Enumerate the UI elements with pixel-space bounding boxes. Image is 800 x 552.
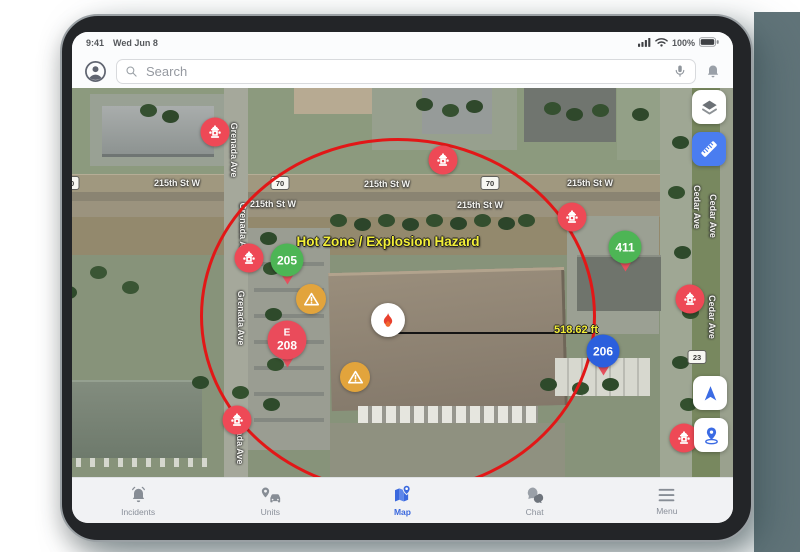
mic-icon[interactable] (673, 63, 687, 79)
street-label: Grenada Ave (229, 123, 239, 178)
nav-label: Menu (656, 506, 677, 516)
layers-icon (699, 97, 720, 118)
nav-label: Units (261, 507, 280, 517)
street-label: 215th St W (567, 178, 613, 188)
unit-pin-205[interactable]: 205 (271, 244, 304, 285)
wifi-icon (655, 37, 668, 49)
clock: 9:41 (86, 38, 104, 48)
fire-hydrant-marker[interactable] (676, 285, 705, 314)
warning-marker[interactable] (340, 362, 370, 392)
fire-hydrant-marker[interactable] (558, 203, 587, 232)
fire-hydrant-marker[interactable] (429, 146, 458, 175)
notifications-bell-icon[interactable] (705, 63, 721, 80)
menu-icon (656, 486, 677, 504)
layers-button[interactable] (692, 90, 726, 124)
building (72, 380, 202, 458)
satellite-map[interactable]: 215th St W 215th St W 215th St W 215th S… (72, 88, 733, 477)
warning-marker[interactable] (296, 284, 326, 314)
nav-item-map[interactable]: Map (362, 484, 442, 517)
nav-item-units[interactable]: Units (230, 485, 310, 517)
top-app-bar (72, 54, 733, 88)
road-cedar (660, 88, 692, 477)
chat-icon (524, 485, 546, 505)
battery-icon (699, 37, 719, 49)
measure-ruler-button[interactable] (692, 132, 726, 166)
navigation-arrow-icon (700, 383, 721, 404)
fire-hydrant-marker[interactable] (201, 118, 230, 147)
bottom-navigation: Incidents Units Map Chat Menu (72, 477, 733, 523)
fire-hydrant-marker[interactable] (235, 244, 264, 273)
avatar[interactable] (84, 60, 107, 83)
unit-pin-label: 208 (277, 340, 297, 352)
battery-percent: 100% (672, 38, 695, 48)
street-label: Cedar Ave (708, 194, 718, 238)
search-input[interactable] (144, 63, 673, 80)
street-label: Cedar Ave (707, 295, 717, 339)
units-vehicle-icon (258, 485, 283, 505)
unit-pin-label: 411 (615, 241, 634, 253)
nav-label: Incidents (121, 507, 155, 517)
unit-pin-label: 206 (593, 345, 613, 357)
fire-hydrant-marker[interactable] (223, 406, 252, 435)
navigation-button[interactable] (693, 376, 727, 410)
street-label: Cedar Ave (692, 185, 702, 229)
terrain-patch (422, 88, 492, 134)
terrain-patch (524, 88, 616, 142)
drop-pin-button[interactable] (694, 418, 728, 452)
unit-pin-e208[interactable]: E 208 (268, 321, 307, 368)
unit-pin-label: E (284, 329, 291, 339)
status-bar: 9:41 Wed Jun 8 100% (72, 32, 733, 54)
hot-zone-label: Hot Zone / Explosion Hazard (296, 234, 479, 249)
incidents-bell-icon (128, 485, 149, 505)
unit-pin-label: 205 (277, 254, 297, 266)
nav-label: Map (394, 507, 411, 517)
nav-item-incidents[interactable]: Incidents (98, 485, 178, 517)
ruler-icon (698, 138, 720, 160)
search-icon (125, 65, 138, 78)
nav-item-chat[interactable]: Chat (495, 485, 575, 517)
unit-pin-411[interactable]: 411 (609, 231, 642, 272)
nav-item-menu[interactable]: Menu (627, 486, 707, 516)
parked-cars (76, 458, 216, 467)
highway-shield: 23 (688, 350, 707, 364)
incident-flame-marker[interactable] (371, 303, 405, 337)
map-icon (391, 484, 413, 505)
street-label: 215th St W (154, 178, 200, 188)
terrain-patch (102, 106, 214, 157)
app-screen: 9:41 Wed Jun 8 100% (72, 32, 733, 523)
drop-pin-icon (701, 425, 722, 446)
signal-icon (638, 37, 651, 49)
tablet-device-frame: 9:41 Wed Jun 8 100% (60, 14, 753, 542)
nav-label: Chat (526, 507, 544, 517)
terrain-patch (294, 88, 372, 114)
date: Wed Jun 8 (113, 38, 158, 48)
search-bar[interactable] (116, 59, 696, 84)
highway-shield: 70 (72, 176, 80, 190)
backdrop-shadow (754, 12, 800, 552)
unit-pin-206[interactable]: 206 (587, 335, 620, 376)
